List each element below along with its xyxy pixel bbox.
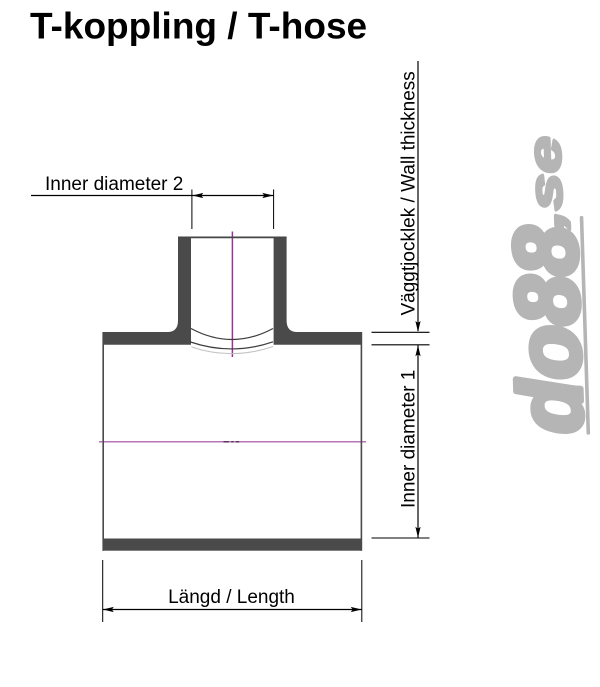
svg-text:T-koppling / T-hose: T-koppling / T-hose (30, 6, 367, 47)
svg-text:Längd / Length: Längd / Length (168, 587, 295, 608)
svg-text:,se: ,se (519, 136, 573, 231)
svg-text:Väggtjocklek / Wall thickness: Väggtjocklek / Wall thickness (399, 71, 420, 315)
svg-text:Inner diameter 1: Inner diameter 1 (399, 370, 420, 508)
svg-text:Inner diameter 2: Inner diameter 2 (45, 174, 183, 195)
